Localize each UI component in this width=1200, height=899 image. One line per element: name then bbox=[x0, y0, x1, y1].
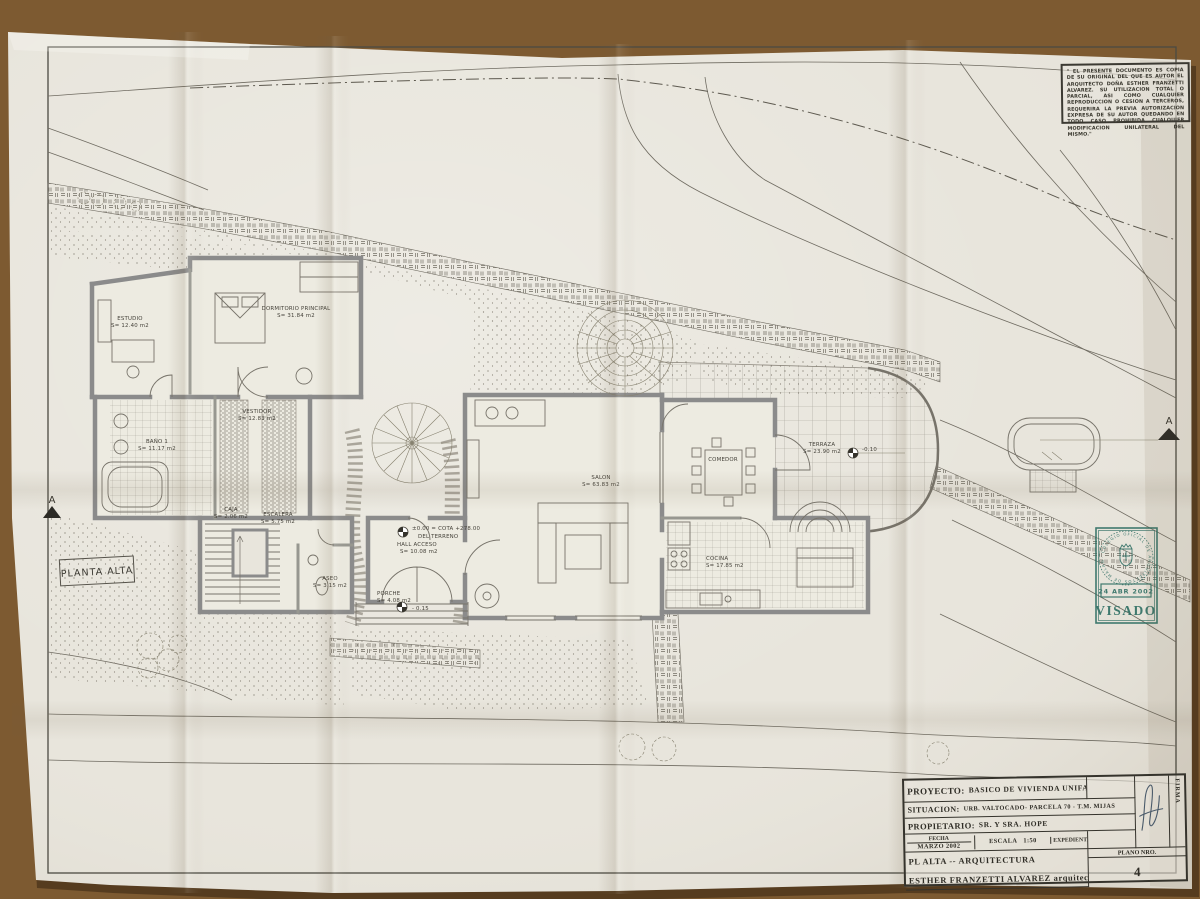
autor: ESTHER FRANZETTI ALVAREZ arquitecto bbox=[909, 872, 1089, 886]
room-area-dormitorio: S= 31.84 m2 bbox=[277, 313, 315, 319]
room-label-estudio: ESTUDIO bbox=[117, 316, 142, 322]
room-area-terraza: S= 23.90 m2 bbox=[803, 449, 841, 455]
proyecto-value: BASICO DE VIVIENDA UNIFAMILIAR bbox=[969, 783, 1088, 795]
level-porch: - 0.15 bbox=[412, 606, 429, 612]
stamp-date: 24 ABR 2002 bbox=[1098, 588, 1153, 596]
photo-of-floor-plan: A A PLANTA ALTA ESTUDIO S= 12.40 m2 DORM… bbox=[0, 0, 1200, 899]
plano-linea: PL ALTA -- ARQUITECTURA bbox=[908, 854, 1035, 866]
expediente-label: EXPEDIENTE bbox=[1053, 837, 1087, 844]
plano-nro-label: PLANO NRO. bbox=[1118, 848, 1157, 856]
title-block: PROYECTO: BASICO DE VIVIENDA UNIFAMILIAR… bbox=[902, 773, 1188, 886]
room-area-vestidor: S= 12.83 m2 bbox=[238, 416, 276, 422]
plano-numero-cell: 4 bbox=[1089, 856, 1187, 887]
titleblock-left-bottom: PL ALTA -- ARQUITECTURA ESTHER FRANZETTI… bbox=[905, 849, 1089, 891]
copyright-note-text: " EL PRESENTE DOCUMENTO ES COPIA DE SU O… bbox=[1067, 67, 1185, 138]
firma-label: FIRMA bbox=[1174, 778, 1180, 803]
room-label-escalera: ESCALERA bbox=[263, 512, 293, 518]
room-area-porche: S= 4.08 m2 bbox=[377, 598, 411, 604]
room-area-escalera: S= 5.75 m2 bbox=[261, 519, 295, 525]
room-label-cocina: COCINA bbox=[706, 556, 728, 562]
escala-label: ESCALA bbox=[989, 838, 1017, 846]
room-area-cocina: S= 17.85 m2 bbox=[706, 563, 744, 569]
level-terrace: -0.10 bbox=[862, 447, 877, 453]
plano-numero: 4 bbox=[1134, 864, 1141, 880]
room-label-hall: HALL ACCESO bbox=[397, 542, 437, 548]
signature-cell bbox=[1135, 776, 1170, 849]
room-area-hall: S= 10.08 m2 bbox=[400, 549, 438, 555]
firma-cell: FIRMA bbox=[1169, 775, 1185, 847]
propietario-value: SR. Y SRA. HOPE bbox=[979, 819, 1048, 829]
room-label-terraza: TERRAZA bbox=[808, 442, 836, 448]
room-label-porche: PORCHE bbox=[377, 591, 401, 597]
room-area-caja: S= 2.06 m2 bbox=[214, 514, 248, 520]
situacion-label: SITUACION: bbox=[908, 805, 960, 815]
level-terrain: DEL TERRENO bbox=[418, 534, 458, 540]
signature bbox=[1135, 776, 1166, 839]
titleblock-r4sp bbox=[1088, 830, 1136, 849]
room-label-comedor: COMEDOR bbox=[708, 457, 738, 463]
fecha-value: MARZO 2002 bbox=[917, 842, 960, 850]
copyright-note: " EL PRESENTE DOCUMENTO ES COPIA DE SU O… bbox=[1061, 62, 1191, 124]
situacion-value: URB. VALTOCADO- PARCELA 70 - T.M. MIJAS bbox=[964, 803, 1116, 813]
room-label-bano1: BAÑO 1 bbox=[146, 438, 168, 445]
escala-value: 1:50 bbox=[1023, 837, 1036, 844]
plan-sheet-svg: A A PLANTA ALTA ESTUDIO S= 12.40 m2 DORM… bbox=[0, 0, 1200, 899]
room-area-estudio: S= 12.40 m2 bbox=[111, 323, 149, 329]
level-cota: ±0.00 = COTA +278.00 bbox=[412, 526, 480, 532]
propietario-label: PROPIETARIO: bbox=[908, 820, 975, 831]
proyecto-label: PROYECTO: bbox=[907, 785, 965, 796]
titleblock-r1sp bbox=[1087, 776, 1135, 799]
room-label-vestidor: VESTIDOR bbox=[242, 409, 271, 415]
